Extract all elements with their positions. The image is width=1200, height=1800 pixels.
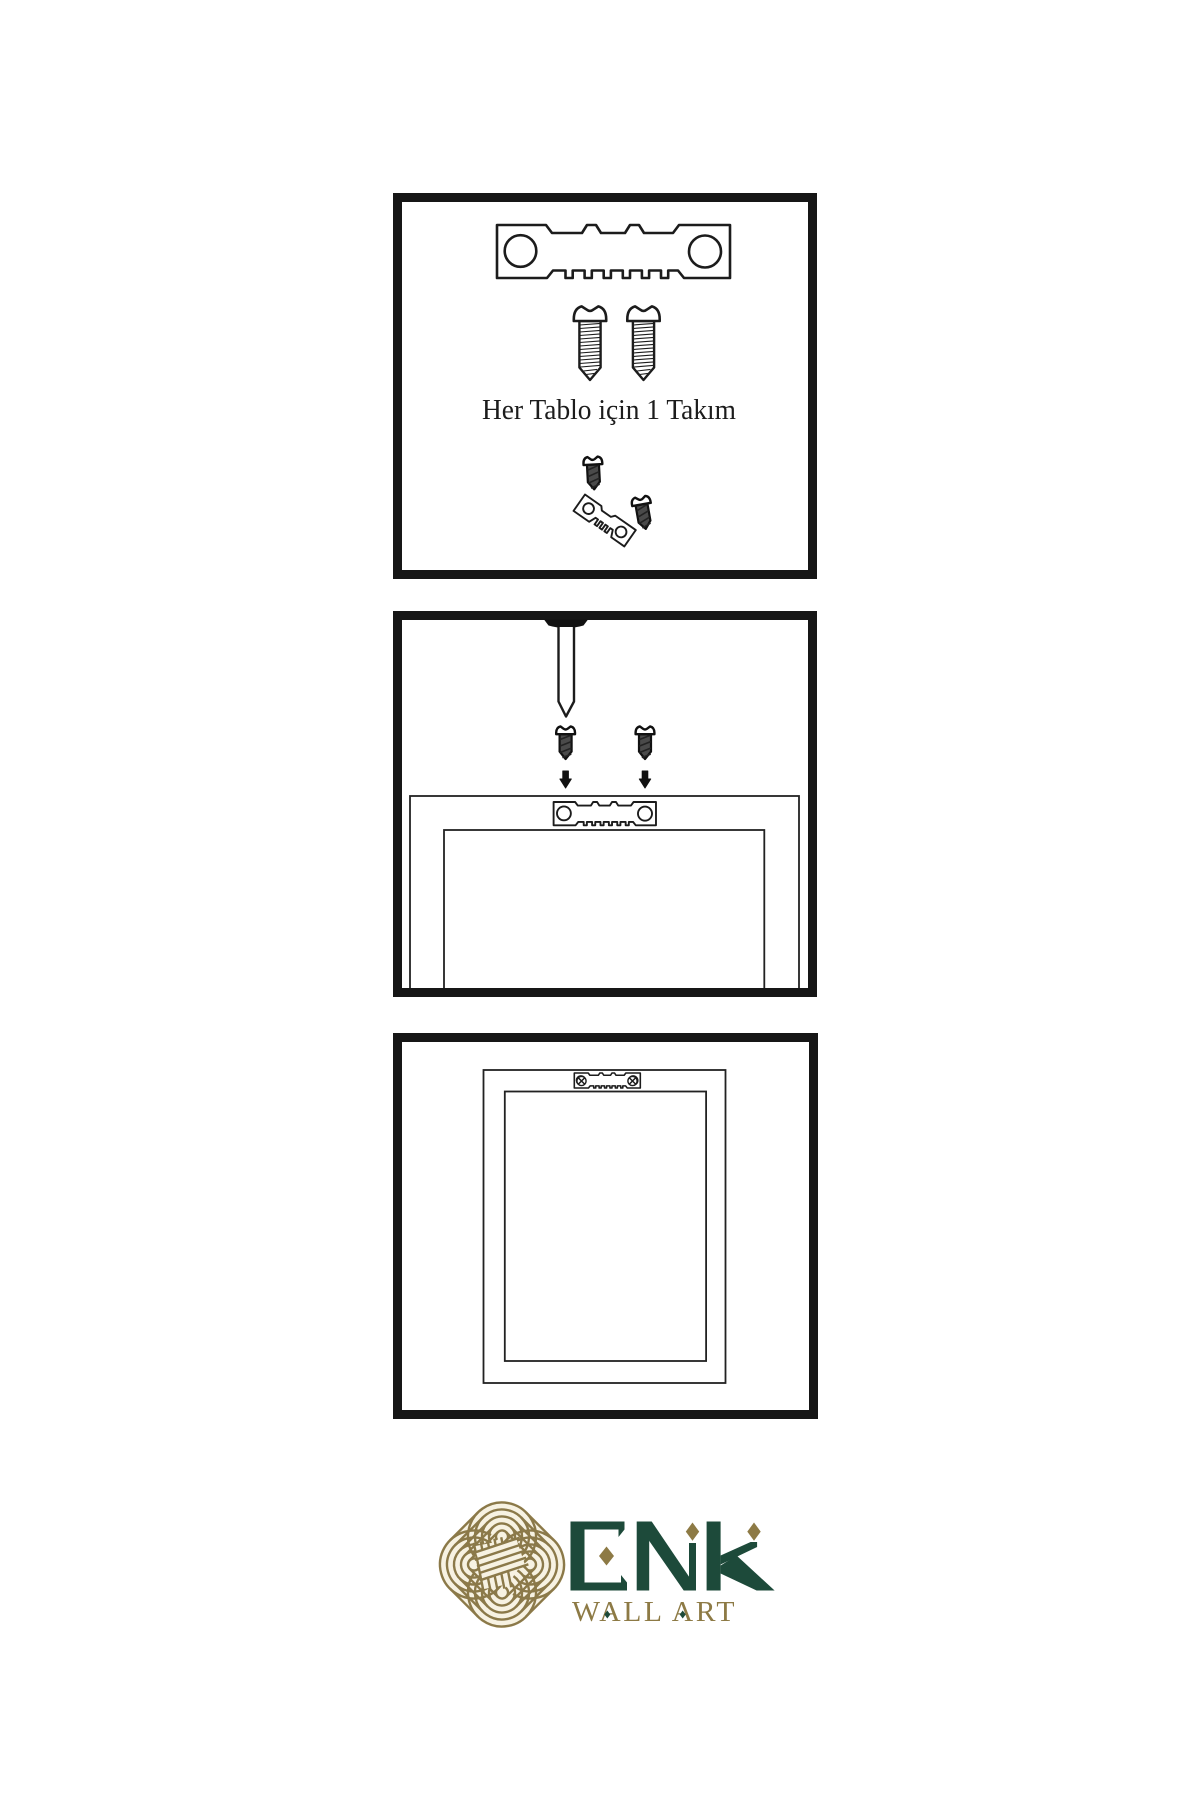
svg-text:WALL ART: WALL ART	[572, 1596, 737, 1628]
svg-text:Her Tablo için 1 Takım: Her Tablo için 1 Takım	[482, 395, 736, 426]
